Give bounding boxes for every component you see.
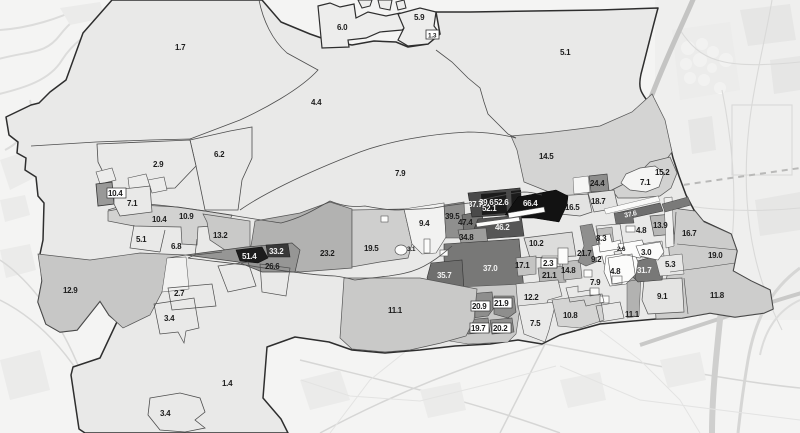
svg-text:2.7: 2.7 bbox=[174, 289, 185, 298]
svg-text:4.8: 4.8 bbox=[610, 267, 621, 276]
svg-text:35.7: 35.7 bbox=[437, 271, 452, 280]
svg-text:47.4: 47.4 bbox=[458, 218, 473, 227]
svg-text:11.8: 11.8 bbox=[710, 291, 725, 300]
svg-text:14.8: 14.8 bbox=[561, 266, 576, 275]
svg-text:51.4: 51.4 bbox=[242, 252, 257, 261]
svg-text:15.2: 15.2 bbox=[655, 168, 670, 177]
svg-text:12.9: 12.9 bbox=[63, 286, 78, 295]
svg-text:1.4: 1.4 bbox=[222, 379, 233, 388]
svg-text:7.9: 7.9 bbox=[590, 278, 601, 287]
svg-text:1.3: 1.3 bbox=[428, 33, 437, 40]
svg-text:8.3: 8.3 bbox=[596, 234, 607, 243]
svg-text:37.0: 37.0 bbox=[483, 264, 498, 273]
svg-text:10.4: 10.4 bbox=[152, 215, 167, 224]
svg-text:46.2: 46.2 bbox=[495, 223, 510, 232]
svg-text:21.1: 21.1 bbox=[542, 271, 557, 280]
svg-text:24.4: 24.4 bbox=[590, 179, 605, 188]
svg-text:5.1: 5.1 bbox=[136, 235, 147, 244]
svg-text:11.1: 11.1 bbox=[625, 310, 640, 319]
svg-text:3.4: 3.4 bbox=[164, 314, 175, 323]
svg-text:2.9: 2.9 bbox=[153, 160, 164, 169]
svg-text:2.3: 2.3 bbox=[543, 259, 554, 268]
svg-text:1.7: 1.7 bbox=[175, 43, 186, 52]
svg-text:10.9: 10.9 bbox=[179, 212, 194, 221]
svg-text:10.2: 10.2 bbox=[529, 239, 544, 248]
svg-text:3.4: 3.4 bbox=[160, 409, 171, 418]
svg-text:21.9: 21.9 bbox=[494, 299, 509, 308]
svg-text:20.9: 20.9 bbox=[472, 302, 487, 311]
svg-text:4.4: 4.4 bbox=[311, 98, 322, 107]
svg-text:2.6: 2.6 bbox=[617, 246, 626, 253]
svg-text:14.5: 14.5 bbox=[539, 152, 554, 161]
svg-text:26.6: 26.6 bbox=[265, 262, 280, 271]
svg-text:9.1: 9.1 bbox=[657, 292, 668, 301]
svg-text:5.1: 5.1 bbox=[560, 48, 571, 57]
svg-text:31.7: 31.7 bbox=[637, 266, 652, 275]
svg-text:52.1: 52.1 bbox=[482, 204, 497, 213]
svg-text:11.1: 11.1 bbox=[388, 306, 403, 315]
svg-text:9.2: 9.2 bbox=[591, 255, 602, 264]
svg-text:17.1: 17.1 bbox=[515, 261, 530, 270]
svg-text:12.2: 12.2 bbox=[524, 293, 539, 302]
svg-text:19.0: 19.0 bbox=[708, 251, 723, 260]
svg-text:7.1: 7.1 bbox=[640, 178, 651, 187]
svg-text:7.9: 7.9 bbox=[395, 169, 406, 178]
svg-text:18.7: 18.7 bbox=[591, 197, 606, 206]
svg-text:3.0: 3.0 bbox=[641, 248, 652, 257]
svg-text:10.8: 10.8 bbox=[563, 311, 578, 320]
svg-text:4.8: 4.8 bbox=[636, 226, 647, 235]
svg-text:20.2: 20.2 bbox=[493, 324, 508, 333]
svg-text:16.7: 16.7 bbox=[682, 229, 697, 238]
svg-text:33.2: 33.2 bbox=[269, 247, 284, 256]
svg-text:9.4: 9.4 bbox=[419, 219, 430, 228]
svg-text:13.2: 13.2 bbox=[213, 231, 228, 240]
svg-text:6.0: 6.0 bbox=[337, 23, 348, 32]
svg-text:19.5: 19.5 bbox=[364, 244, 379, 253]
svg-text:5.9: 5.9 bbox=[414, 13, 425, 22]
svg-text:34.8: 34.8 bbox=[459, 233, 474, 242]
svg-text:19.7: 19.7 bbox=[471, 324, 486, 333]
svg-text:16.5: 16.5 bbox=[565, 203, 580, 212]
svg-text:66.4: 66.4 bbox=[523, 199, 538, 208]
svg-text:23.2: 23.2 bbox=[320, 249, 335, 258]
svg-text:13.9: 13.9 bbox=[653, 221, 668, 230]
svg-text:5.3: 5.3 bbox=[665, 260, 676, 269]
svg-text:7.1: 7.1 bbox=[127, 199, 138, 208]
svg-text:6.2: 6.2 bbox=[214, 150, 225, 159]
svg-text:10.4: 10.4 bbox=[108, 189, 123, 198]
svg-text:3.1: 3.1 bbox=[407, 246, 416, 253]
svg-text:21.7: 21.7 bbox=[577, 249, 592, 258]
svg-text:6.8: 6.8 bbox=[171, 242, 182, 251]
svg-text:7.5: 7.5 bbox=[530, 319, 541, 328]
